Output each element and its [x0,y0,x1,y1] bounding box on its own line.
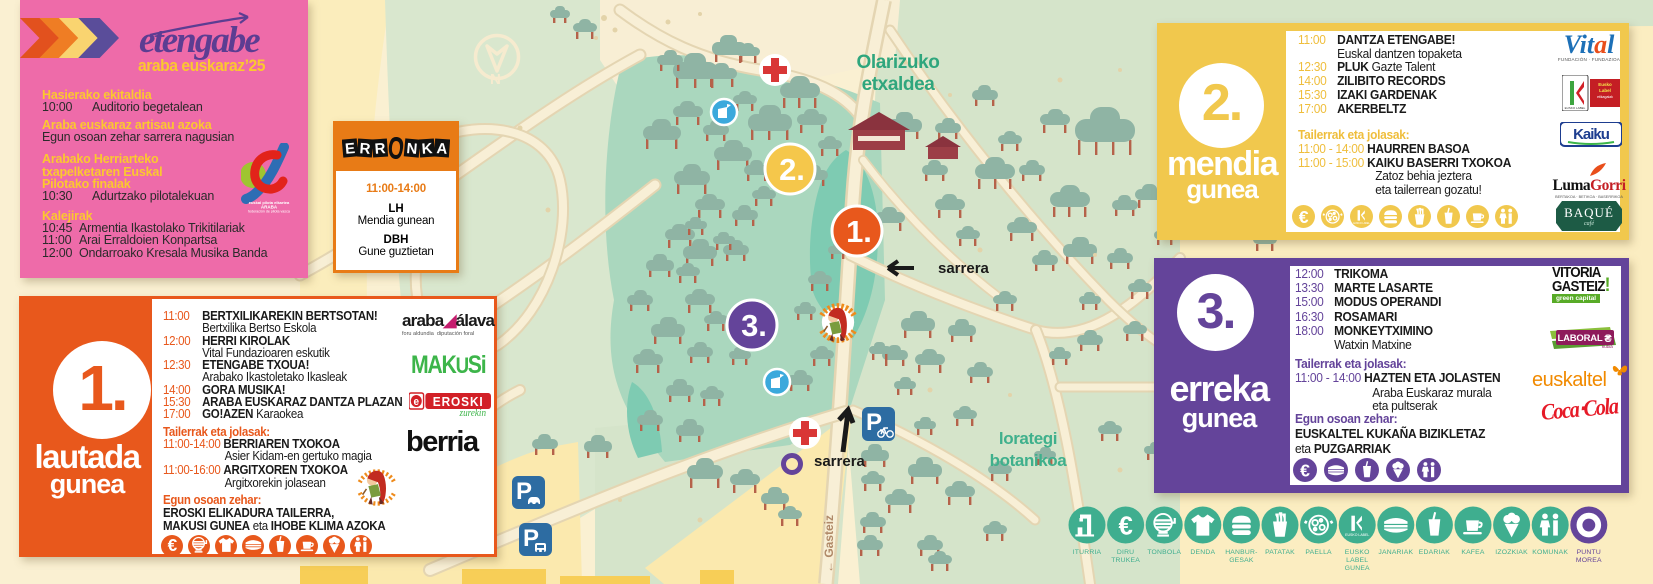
svg-text:← Gasteiz: ← Gasteiz [822,515,836,573]
svg-text:R: R [359,140,371,158]
svg-text:KOMUNAK: KOMUNAK [1532,549,1568,556]
svg-text:lorategi: lorategi [999,429,1057,448]
svg-text:DIRU: DIRU [1117,549,1134,556]
svg-text:PATATAK: PATATAK [1265,549,1295,556]
svg-text:etengabe: etengabe [139,20,260,61]
svg-text:Olarizuko: Olarizuko [857,52,940,73]
svg-text:EUSKO: EUSKO [1345,549,1370,556]
svg-text:A: A [436,140,448,158]
svg-text:sarrera: sarrera [938,260,990,277]
svg-text:E: E [344,140,355,158]
svg-text:1.: 1. [846,214,872,249]
svg-text:N: N [406,140,418,158]
svg-text:GUNEA: GUNEA [1345,565,1370,572]
svg-text:PAELLA: PAELLA [1305,549,1332,556]
svg-text:sarrera: sarrera [814,453,866,470]
svg-text:EDARIAK: EDARIAK [1419,549,1451,556]
svg-text:TRUKEA: TRUKEA [1111,557,1140,564]
svg-text:MOREA: MOREA [1576,557,1602,564]
svg-text:BAQUÉ: BAQUÉ [1564,205,1614,220]
svg-text:KAFEA: KAFEA [1461,549,1485,556]
svg-text:3.: 3. [741,308,767,343]
svg-text:GESAK: GESAK [1229,557,1254,564]
svg-text:LABORAL: LABORAL [1557,333,1602,344]
svg-text:e: e [413,396,419,409]
svg-text:P: P [866,409,882,436]
svg-text:TONBOLA: TONBOLA [1147,549,1181,556]
svg-text:DENDA: DENDA [1190,549,1215,556]
svg-text:PUNTU: PUNTU [1577,549,1601,556]
svg-text:kutxa: kutxa [1602,344,1613,349]
svg-text:Kaiku: Kaiku [1573,126,1610,143]
svg-text:Eusko: Eusko [1598,82,1612,87]
svg-text:Label: Label [1599,88,1611,93]
svg-text:IZOZKIAK: IZOZKIAK [1495,549,1528,556]
svg-text:HANBUR-: HANBUR- [1225,549,1257,556]
svg-text:EUSKO LABEL: EUSKO LABEL [1565,106,1586,110]
svg-text:K: K [421,140,433,158]
svg-text:2.: 2. [779,152,805,187]
svg-text:etxaldea: etxaldea [862,74,936,95]
svg-text:ITURRIA: ITURRIA [1073,549,1102,556]
svg-text:N: N [490,71,501,88]
svg-text:etikagaiak: etikagaiak [1597,95,1613,99]
svg-text:JANARIAK: JANARIAK [1378,549,1413,556]
svg-text:federación de pilota vasca: federación de pilota vasca [248,210,290,214]
svg-text:botanikoa: botanikoa [990,451,1068,470]
svg-text:R: R [374,140,386,158]
svg-text:LABEL: LABEL [1346,557,1368,564]
svg-text:café: café [1584,220,1594,227]
svg-text:zurekin: zurekin [459,408,487,417]
